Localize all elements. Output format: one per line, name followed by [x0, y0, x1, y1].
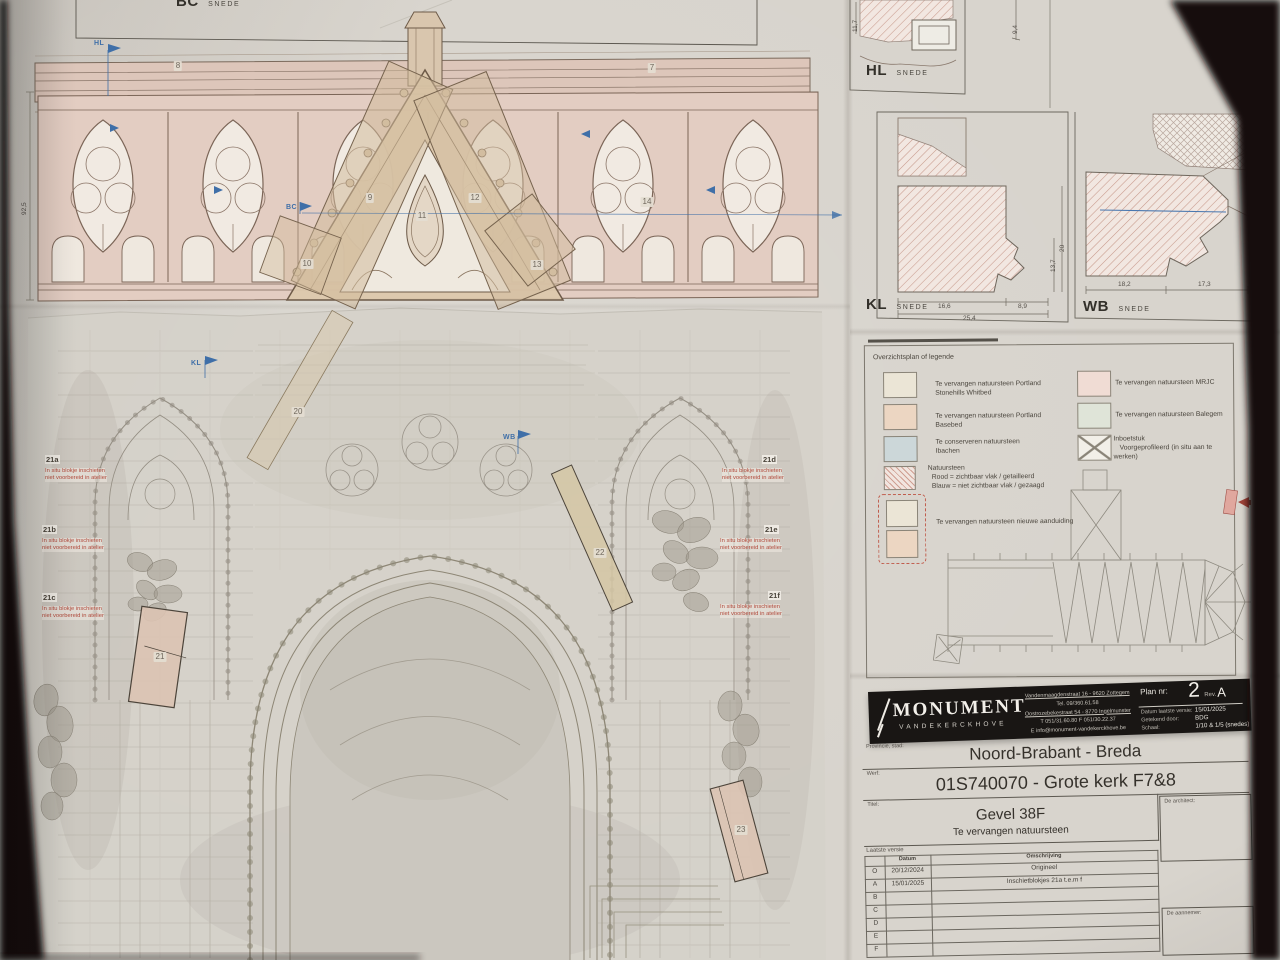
- marker-hl: HL: [94, 40, 104, 47]
- wb-section-label: WB SNEDE: [1083, 298, 1151, 316]
- marker-kl: KL: [191, 360, 201, 367]
- insitu-note: 21d In situ blokje inschieten niet voorb…: [722, 448, 817, 482]
- wb-dim-w2: 17,3: [1198, 281, 1211, 288]
- note-id: 21c: [42, 593, 57, 602]
- legend-swatch: [883, 404, 917, 430]
- architect-label: De architect:: [1164, 798, 1195, 805]
- aannemer-label: De aannemer:: [1167, 910, 1202, 917]
- part-tag: 14: [641, 197, 654, 207]
- schaal-label: Schaal:: [1141, 725, 1160, 732]
- schaal-value: 1/10 & 1/5 (snedes): [1195, 721, 1249, 730]
- plan-number-area: Plan nr: 2 Rev. A Datum laatste versie: …: [1136, 679, 1250, 735]
- plan-nr: 2: [1188, 678, 1201, 702]
- insitu-note: 21a In situ blokje inschieten niet voorb…: [45, 448, 140, 482]
- legend-label: Te vervangen natuursteen Portland Stoneh…: [935, 379, 1063, 398]
- note-line: niet voorbereid in atelier: [722, 475, 784, 482]
- note-id: 21f: [768, 591, 781, 600]
- hl-section-drawing: [850, 0, 1050, 108]
- legend-swatch: [886, 500, 918, 527]
- kl-code: KL: [866, 296, 887, 313]
- hl-dim-left: 11,7: [852, 20, 859, 32]
- section-details: [848, 0, 1258, 345]
- part-tag: 21: [154, 652, 167, 662]
- laatste-versie-caption: Laatste versie: [866, 847, 903, 854]
- col-datum: Datum: [884, 856, 930, 863]
- highlighted-bay: [1223, 489, 1237, 514]
- note-line: niet voorbereid in atelier: [720, 545, 782, 552]
- legend-title: Overzichtsplan of legende: [873, 354, 954, 362]
- location-arrow: [1238, 497, 1251, 508]
- hl-code: HL: [866, 62, 887, 79]
- kl-dim-w1: 16,6: [938, 303, 951, 310]
- note-line: In situ blokje inschieten: [722, 468, 782, 475]
- legend-label-line: Te conserveren natuursteen: [935, 438, 1019, 446]
- rev-datum: 20/12/2024: [885, 867, 931, 875]
- project-info: Provincie, stad: Noord-Brabant - Breda W…: [862, 734, 1254, 960]
- bc-code: BC: [176, 0, 199, 10]
- note-line: niet voorbereid in atelier: [45, 475, 107, 482]
- kl-dim-total: 25,4: [963, 315, 976, 322]
- photographed-architectural-drawing: BC SNEDE 92,5 HL BC KL WB 7 8 9 10 11 12…: [0, 0, 1280, 960]
- hl-section-label: HL SNEDE: [866, 62, 929, 80]
- address-line: Vandenmaagdenstraat 16 - 9620 Zottegem: [1025, 690, 1130, 700]
- note-line: niet voorbereid in atelier: [42, 613, 104, 620]
- part-tag: 8: [174, 61, 182, 71]
- kl-section-label: KL SNEDE: [866, 296, 929, 314]
- note-line: In situ blokje inschieten: [720, 604, 780, 611]
- getekend-value: BDG: [1195, 714, 1209, 721]
- aannemer-box: De aannemer:: [1162, 906, 1255, 956]
- logo-slash: [877, 698, 890, 730]
- legend-label: Te vervangen natuursteen Portland Basebe…: [935, 411, 1063, 430]
- note-id: 21e: [764, 525, 779, 534]
- legend-swatch: [1077, 371, 1111, 397]
- kl-dim-h1: 13,7: [1050, 259, 1057, 272]
- subtitel-value: Te vervangen natuursteen: [864, 823, 1158, 840]
- legend-label: Te conserveren natuursteen Ibachen: [935, 437, 1063, 456]
- elevation-height-dim: 92,5: [21, 202, 28, 215]
- werf-value: 01S740070 - Grote kerk F7&8: [863, 768, 1249, 797]
- legend-swatch: [886, 530, 918, 558]
- rev-code: A: [865, 881, 885, 888]
- part-tag: 22: [594, 548, 607, 558]
- rev-code: F: [866, 946, 886, 953]
- legend-label-line: Inboetstuk: [1113, 435, 1144, 442]
- getekend-label: Getekend door:: [1141, 716, 1179, 723]
- revision-table: Datum Omschrijving O 20/12/2024 Originee…: [864, 850, 1160, 957]
- plan-nr-label: Plan nr:: [1140, 687, 1168, 697]
- kl-section-drawing: [877, 112, 1068, 322]
- rev-code: C: [865, 907, 885, 914]
- wb-dim-w1: 18,2: [1118, 281, 1131, 288]
- legend-swatch: [883, 436, 917, 462]
- datum-value: 15/01/2025: [1195, 706, 1226, 714]
- dimension-lines: [26, 92, 34, 300]
- part-tag: 23: [735, 825, 748, 835]
- rev-code: O: [865, 868, 885, 875]
- legend-swatch: [1077, 403, 1111, 429]
- rev-value: A: [1217, 685, 1226, 700]
- insitu-note: 21f In situ blokje inschieten niet voorb…: [720, 584, 815, 618]
- company-subname: VANDEKERCKHOVE: [899, 720, 1007, 731]
- rev-datum: 15/01/2025: [885, 880, 931, 888]
- legend-label-line: Voorgeprofileerd (in situ aan te werken): [1114, 444, 1213, 461]
- titel-label: Titel:: [867, 802, 879, 808]
- insitu-note: 21b In situ blokje inschieten niet voorb…: [42, 518, 137, 552]
- rev-code: E: [866, 933, 886, 940]
- note-line: In situ blokje inschieten: [42, 606, 102, 613]
- wb-word: SNEDE: [1118, 306, 1150, 313]
- address-line: T 051/31.60.80 F 051/30.22.37: [1040, 717, 1116, 726]
- part-tag: 10: [301, 259, 314, 269]
- note-id: 21a: [45, 455, 60, 464]
- part-tag: 11: [416, 211, 428, 221]
- note-id: 21d: [762, 455, 777, 464]
- kl-dim-h2: 20: [1059, 245, 1066, 252]
- part-tag: 9: [366, 193, 374, 203]
- address-line: E info@monument-vandekerckhove.be: [1031, 725, 1126, 734]
- wb-section-drawing: [1075, 112, 1252, 321]
- legend-label: Te vervangen natuursteen Balegem: [1115, 410, 1233, 420]
- marker-bc: BC: [286, 204, 297, 211]
- legend-label: Te vervangen natuursteen MRJC: [1115, 378, 1233, 388]
- note-line: niet voorbereid in atelier: [720, 611, 782, 618]
- note-line: In situ blokje inschieten: [720, 538, 780, 545]
- part-tag: 12: [469, 193, 482, 203]
- wb-code: WB: [1083, 298, 1109, 315]
- legend-swatch-inboetstuk: [1077, 435, 1111, 461]
- datum-label: Datum laatste versie:: [1141, 708, 1193, 716]
- insitu-note: 21e In situ blokje inschieten niet voorb…: [720, 518, 815, 552]
- part-tag: 13: [531, 260, 544, 270]
- legend-label-line: Ibachen: [936, 448, 960, 455]
- architect-box: De architect:: [1159, 794, 1252, 862]
- part-tag: 7: [648, 63, 656, 73]
- company-name: MONUMENT: [892, 696, 1026, 723]
- legend-swatch-hatch: [884, 466, 916, 490]
- church-floor-plan: [933, 468, 1251, 675]
- company-address: Vandenmaagdenstraat 16 - 9620 Zottegem T…: [1018, 689, 1137, 737]
- titel-value: Gevel 38F: [863, 803, 1157, 826]
- insitu-note: 21c In situ blokje inschieten niet voorb…: [42, 586, 137, 620]
- legend-label: Inboetstuk Voorgeprofileerd (in situ aan…: [1113, 434, 1233, 462]
- legend-swatch: [883, 372, 917, 398]
- rev-label: Rev.: [1204, 692, 1216, 698]
- part-tag: 20: [292, 407, 305, 417]
- bc-section-label: BC SNEDE: [176, 0, 240, 11]
- address-line: Tel. 09/360.61.58: [1056, 700, 1098, 707]
- hl-dim-right: 9,4: [1012, 25, 1019, 34]
- hl-word: SNEDE: [896, 70, 928, 77]
- note-line: niet voorbereid in atelier: [42, 545, 104, 552]
- kl-dim-w2: 8,9: [1018, 303, 1027, 310]
- rev-code: B: [865, 894, 885, 901]
- note-id: 21b: [42, 525, 57, 534]
- rev-code: D: [866, 920, 886, 927]
- note-line: In situ blokje inschieten: [42, 538, 102, 545]
- note-line: In situ blokje inschieten: [45, 468, 105, 475]
- titel-row: Titel: Gevel 38F Te vervangen natuurstee…: [863, 794, 1159, 847]
- bc-word: SNEDE: [208, 1, 240, 8]
- kl-word: SNEDE: [896, 304, 928, 311]
- marker-wb: WB: [503, 434, 516, 441]
